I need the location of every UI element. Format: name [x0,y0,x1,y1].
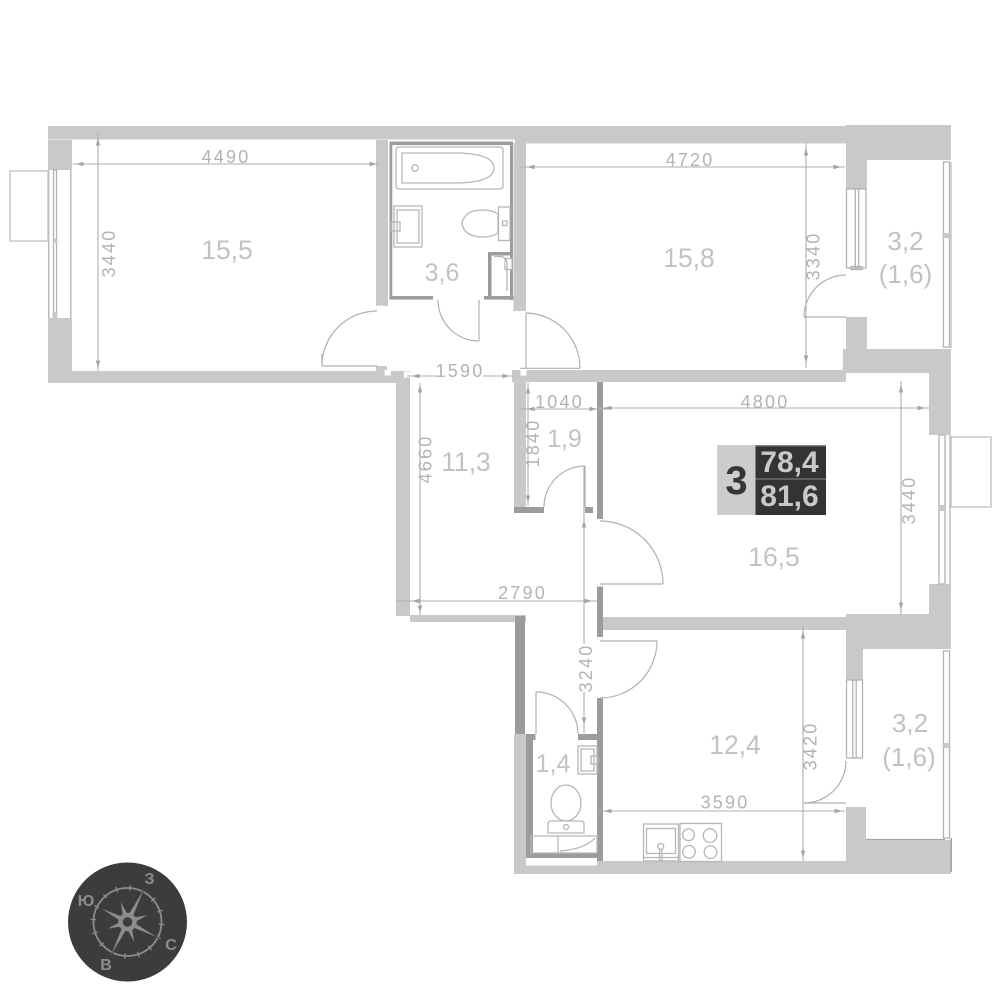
svg-text:11,3: 11,3 [441,447,491,477]
svg-text:(1,6): (1,6) [879,259,932,289]
svg-text:3440: 3440 [99,229,119,278]
svg-text:4800: 4800 [741,392,790,412]
svg-text:78,4: 78,4 [760,446,819,479]
svg-text:81,6: 81,6 [760,480,818,513]
svg-text:3,2: 3,2 [887,226,923,256]
svg-text:12,4: 12,4 [709,730,761,760]
svg-text:15,5: 15,5 [201,235,253,265]
svg-text:3,2: 3,2 [892,708,928,738]
svg-text:15,8: 15,8 [663,243,715,273]
svg-text:3,6: 3,6 [425,259,460,287]
svg-text:3590: 3590 [701,793,750,813]
svg-text:2790: 2790 [498,583,547,603]
svg-text:В: В [100,957,112,974]
svg-text:3: 3 [725,459,747,503]
svg-text:3340: 3340 [804,232,824,281]
svg-text:4490: 4490 [202,147,251,167]
svg-text:(1,6): (1,6) [882,742,935,772]
svg-text:З: З [144,871,154,888]
svg-text:16,5: 16,5 [748,542,800,572]
svg-text:Ю: Ю [78,893,95,910]
svg-text:4660: 4660 [416,435,436,484]
svg-text:4720: 4720 [666,150,715,170]
svg-text:1840: 1840 [523,419,543,468]
svg-text:3440: 3440 [899,476,919,525]
svg-text:1,9: 1,9 [547,425,582,453]
svg-text:1590: 1590 [436,361,485,381]
svg-text:3420: 3420 [801,722,821,771]
svg-text:3240: 3240 [576,644,596,693]
svg-text:1040: 1040 [535,392,584,412]
svg-text:1,4: 1,4 [536,750,571,778]
svg-text:С: С [165,937,177,954]
